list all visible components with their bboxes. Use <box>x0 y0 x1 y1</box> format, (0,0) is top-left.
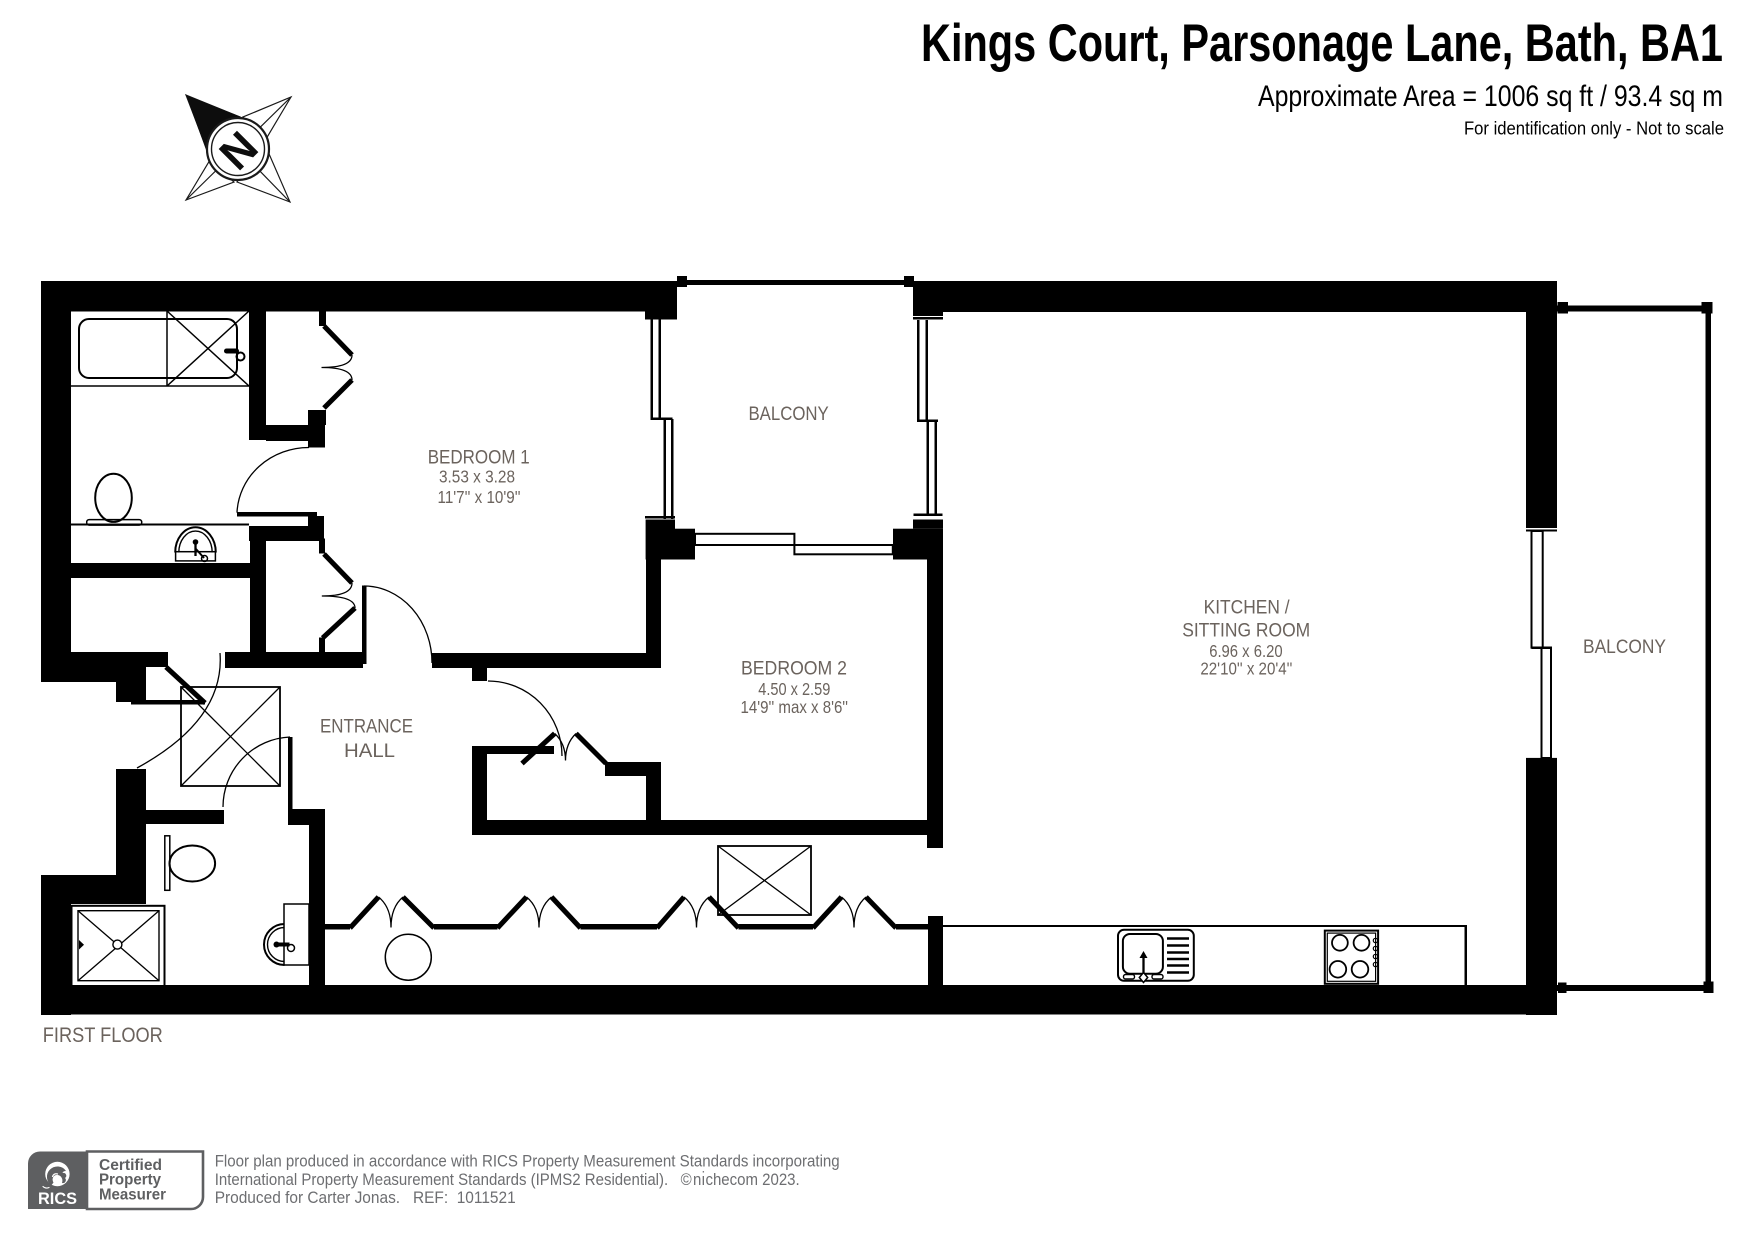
svg-text:14'9'' max x 8'6'': 14'9'' max x 8'6'' <box>741 697 849 717</box>
svg-text:HALL: HALL <box>344 740 395 762</box>
svg-text:SITTING ROOM: SITTING ROOM <box>1182 619 1310 641</box>
svg-text:FIRST FLOOR: FIRST FLOOR <box>43 1023 163 1047</box>
svg-text:For identification only - Not: For identification only - Not to scale <box>1464 118 1724 139</box>
svg-text:ENTRANCE: ENTRANCE <box>320 716 413 738</box>
svg-text:11'7'' x 10'9'': 11'7'' x 10'9'' <box>438 487 521 507</box>
svg-text:4.50 x 2.59: 4.50 x 2.59 <box>758 679 830 699</box>
svg-text:Floor plan produced in accorda: Floor plan produced in accordance with R… <box>215 1153 840 1171</box>
svg-text:RICS: RICS <box>38 1190 77 1208</box>
svg-text:BALCONY: BALCONY <box>1583 636 1666 658</box>
svg-text:BEDROOM 1: BEDROOM 1 <box>428 447 530 469</box>
svg-text:KITCHEN /: KITCHEN / <box>1204 596 1291 618</box>
svg-text:International Property Measure: International Property Measurement Stand… <box>215 1171 800 1189</box>
svg-text:Measurer: Measurer <box>99 1187 166 1204</box>
svg-text:BALCONY: BALCONY <box>748 403 828 425</box>
svg-text:Kings Court, Parsonage Lane, B: Kings Court, Parsonage Lane, Bath, BA1 <box>921 14 1723 73</box>
svg-text:BEDROOM 2: BEDROOM 2 <box>741 657 847 679</box>
svg-text:22'10'' x 20'4'': 22'10'' x 20'4'' <box>1200 658 1292 678</box>
svg-text:Approximate Area = 1006 sq ft: Approximate Area = 1006 sq ft / 93.4 sq … <box>1258 80 1723 113</box>
svg-text:Produced for Carter Jonas. R: Produced for Carter Jonas. REF: 1011521 <box>215 1189 516 1207</box>
svg-text:3.53 x 3.28: 3.53 x 3.28 <box>439 467 515 487</box>
